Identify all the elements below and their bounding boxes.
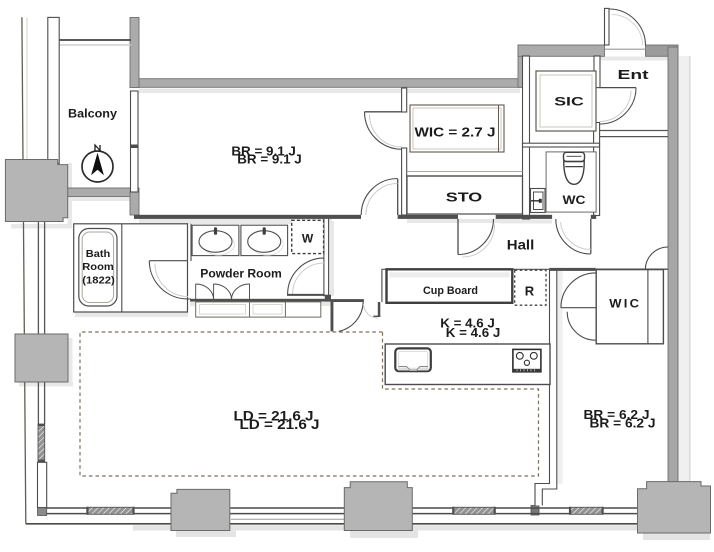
svg-text:(1822): (1822) — [82, 275, 115, 287]
svg-text:SIC: SIC — [554, 95, 584, 109]
svg-text:K = 4.6 J: K = 4.6 J — [440, 316, 495, 331]
svg-text:Cup Board: Cup Board — [423, 285, 478, 297]
svg-text:WC: WC — [563, 193, 586, 207]
svg-text:BR = 6.2 J: BR = 6.2 J — [584, 407, 650, 422]
svg-text:LD = 21.6 J: LD = 21.6 J — [234, 409, 314, 424]
svg-text:Bath: Bath — [86, 248, 111, 260]
svg-text:Room: Room — [82, 261, 114, 273]
svg-text:W: W — [302, 232, 314, 246]
svg-text:STO: STO — [446, 190, 483, 205]
svg-text:WIC: WIC — [609, 299, 641, 311]
svg-text:Powder Room: Powder Room — [200, 267, 282, 281]
svg-text:WIC = 2.7 J: WIC = 2.7 J — [415, 125, 496, 140]
svg-text:Balcony: Balcony — [68, 107, 117, 121]
svg-text:BR = 9.1 J: BR = 9.1 J — [231, 144, 296, 159]
svg-text:Hall: Hall — [507, 237, 535, 253]
svg-text:Ent: Ent — [618, 68, 650, 82]
svg-text:R: R — [525, 284, 535, 299]
